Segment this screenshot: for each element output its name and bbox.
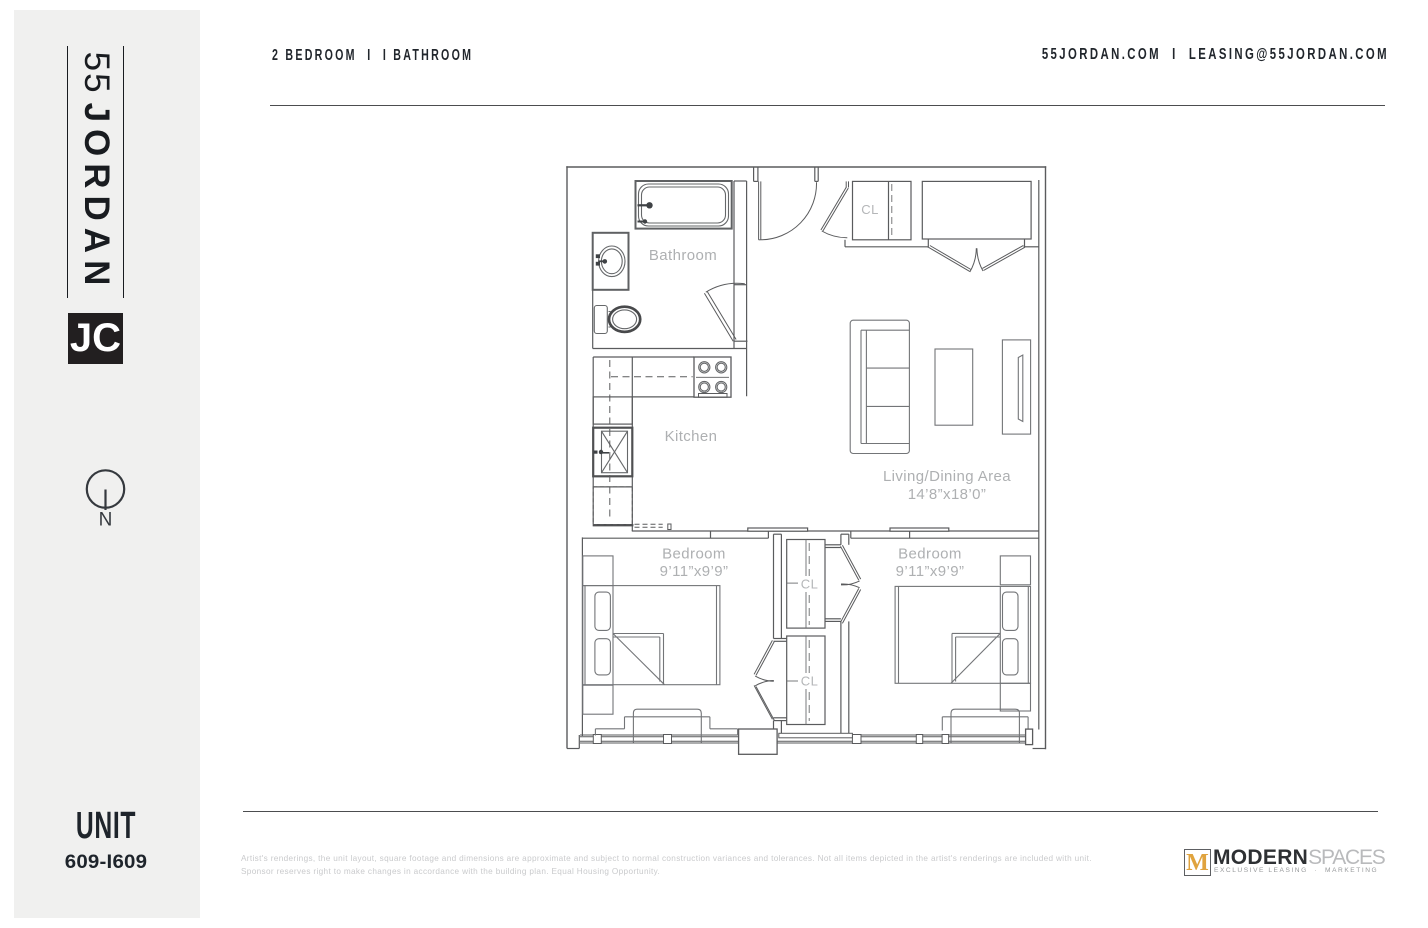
svg-text:Bathroom: Bathroom bbox=[649, 247, 717, 264]
svg-text:14’8”x18’0”: 14’8”x18’0” bbox=[908, 486, 987, 503]
svg-text:Kitchen: Kitchen bbox=[665, 428, 718, 445]
svg-text:9’11”x9’9”: 9’11”x9’9” bbox=[896, 563, 965, 580]
svg-text:Bedroom: Bedroom bbox=[662, 546, 726, 563]
svg-text:CL: CL bbox=[801, 577, 818, 592]
svg-text:9’11”x9’9”: 9’11”x9’9” bbox=[660, 563, 729, 580]
svg-text:Bedroom: Bedroom bbox=[898, 546, 962, 563]
svg-text:N: N bbox=[99, 510, 113, 531]
svg-text:CL: CL bbox=[861, 202, 878, 217]
svg-text:CL: CL bbox=[801, 674, 818, 689]
svg-text:Living/Dining Area: Living/Dining Area bbox=[883, 468, 1011, 485]
